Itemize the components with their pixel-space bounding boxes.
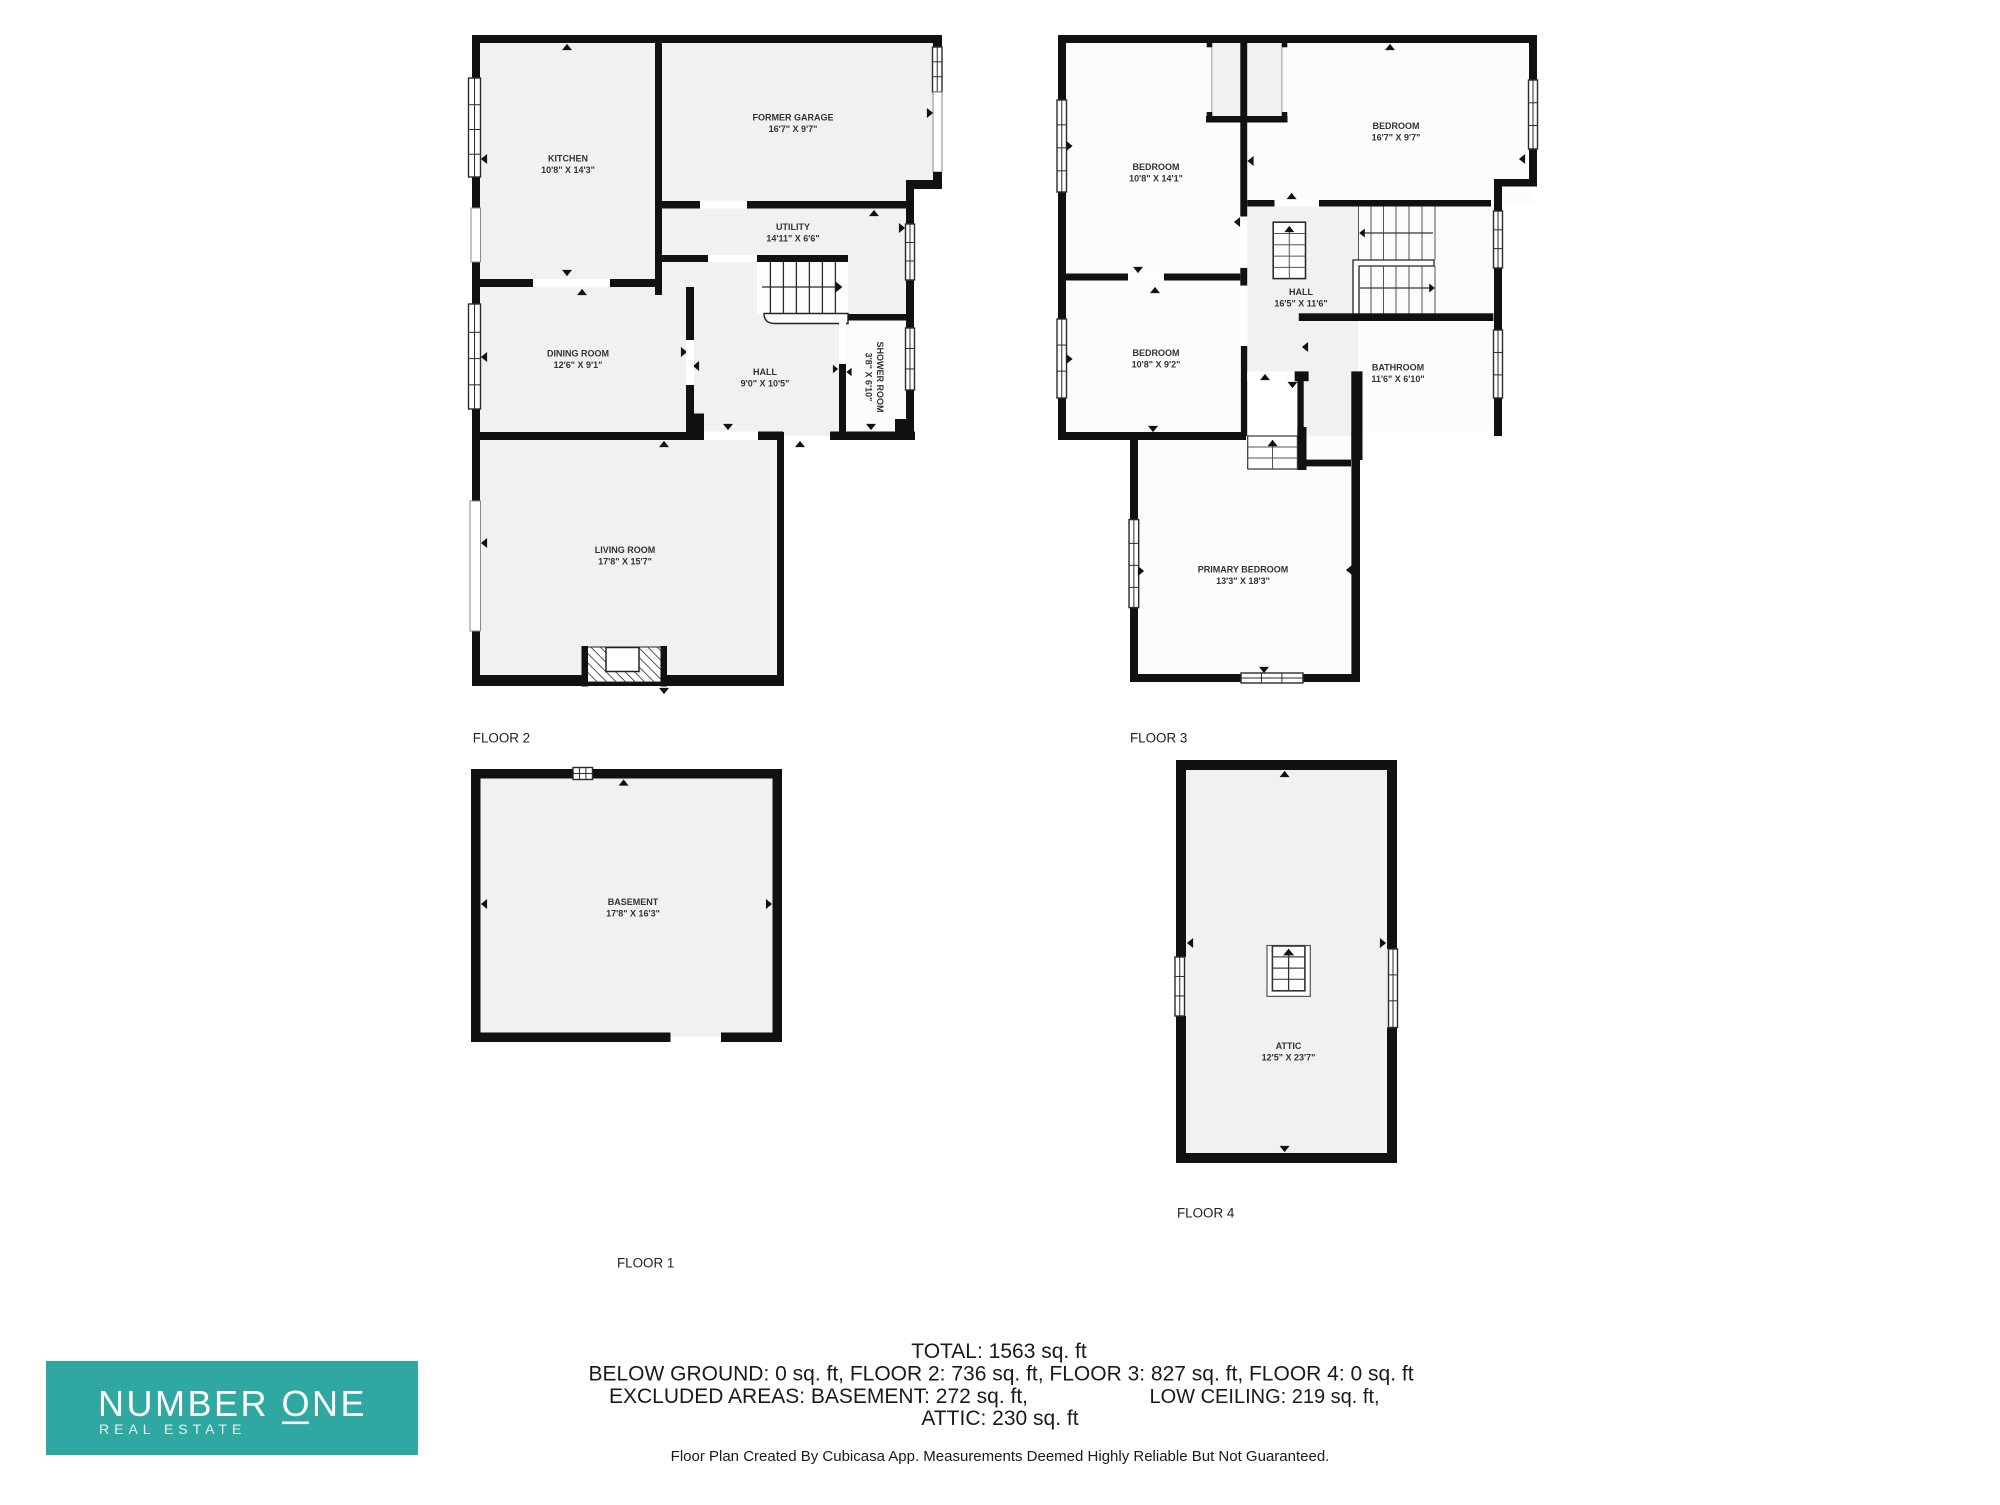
svg-text:EXCLUDED AREAS: BASEMENT: 272: EXCLUDED AREAS: BASEMENT: 272 sq. ft, <box>609 1385 1028 1408</box>
svg-text:LOW CEILING: 219 sq. ft,: LOW CEILING: 219 sq. ft, <box>1150 1386 1380 1408</box>
svg-text:16'5" X 11'6": 16'5" X 11'6" <box>1274 299 1327 309</box>
svg-text:BEDROOM: BEDROOM <box>1133 162 1180 172</box>
svg-text:11'6" X 6'10": 11'6" X 6'10" <box>1371 374 1424 384</box>
svg-text:KITCHEN: KITCHEN <box>548 154 588 164</box>
svg-text:10'8" X 9'2": 10'8" X 9'2" <box>1132 360 1181 370</box>
svg-text:10'8" X 14'1": 10'8" X 14'1" <box>1129 174 1183 184</box>
svg-text:9'0" X 10'5": 9'0" X 10'5" <box>741 379 790 389</box>
svg-text:TOTAL: 1563 sq. ft: TOTAL: 1563 sq. ft <box>911 1340 1087 1363</box>
svg-text:BATHROOM: BATHROOM <box>1372 363 1424 373</box>
svg-text:FLOOR 4: FLOOR 4 <box>1177 1206 1235 1221</box>
svg-text:ATTIC: ATTIC <box>1276 1041 1302 1051</box>
svg-text:REAL ESTATE: REAL ESTATE <box>99 1421 246 1437</box>
svg-text:SHOWER ROOM: SHOWER ROOM <box>875 342 885 413</box>
svg-text:UTILITY: UTILITY <box>776 222 810 232</box>
svg-text:BEDROOM: BEDROOM <box>1373 121 1420 131</box>
svg-text:NUMBER ONE: NUMBER ONE <box>98 1383 367 1424</box>
svg-text:17'8" X 15'7": 17'8" X 15'7" <box>598 557 652 567</box>
svg-text:BELOW GROUND: 0 sq. ft, FLOOR: BELOW GROUND: 0 sq. ft, FLOOR 2: 736 sq.… <box>588 1363 1413 1386</box>
svg-text:12'5" X 23'7": 12'5" X 23'7" <box>1262 1053 1316 1063</box>
svg-text:HALL: HALL <box>753 367 777 377</box>
svg-text:16'7" X 9'7": 16'7" X 9'7" <box>769 124 818 134</box>
svg-text:16'7" X 9'7": 16'7" X 9'7" <box>1372 133 1421 143</box>
svg-text:FORMER GARAGE: FORMER GARAGE <box>753 113 834 123</box>
svg-text:ATTIC: 230 sq. ft: ATTIC: 230 sq. ft <box>921 1407 1078 1430</box>
svg-text:FLOOR 1: FLOOR 1 <box>617 1256 674 1271</box>
svg-text:FLOOR 3: FLOOR 3 <box>1130 731 1187 746</box>
svg-text:Floor Plan Created By Cubicasa: Floor Plan Created By Cubicasa App. Meas… <box>671 1448 1330 1465</box>
svg-text:3'8" X 6'10": 3'8" X 6'10" <box>864 353 874 402</box>
svg-text:12'6" X 9'1": 12'6" X 9'1" <box>554 360 603 370</box>
svg-text:17'8" X 16'3": 17'8" X 16'3" <box>606 908 660 918</box>
svg-text:LIVING ROOM: LIVING ROOM <box>595 545 656 555</box>
svg-text:10'8" X 14'3": 10'8" X 14'3" <box>541 165 595 175</box>
svg-text:14'11" X 6'6": 14'11" X 6'6" <box>766 234 819 244</box>
svg-text:BEDROOM: BEDROOM <box>1133 348 1180 358</box>
svg-text:FLOOR 2: FLOOR 2 <box>473 731 530 746</box>
svg-text:HALL: HALL <box>1289 287 1313 297</box>
svg-text:PRIMARY BEDROOM: PRIMARY BEDROOM <box>1198 565 1289 575</box>
svg-text:13'3" X 18'3": 13'3" X 18'3" <box>1216 576 1270 586</box>
svg-text:DINING ROOM: DINING ROOM <box>547 349 609 359</box>
svg-text:BASEMENT: BASEMENT <box>608 897 659 907</box>
